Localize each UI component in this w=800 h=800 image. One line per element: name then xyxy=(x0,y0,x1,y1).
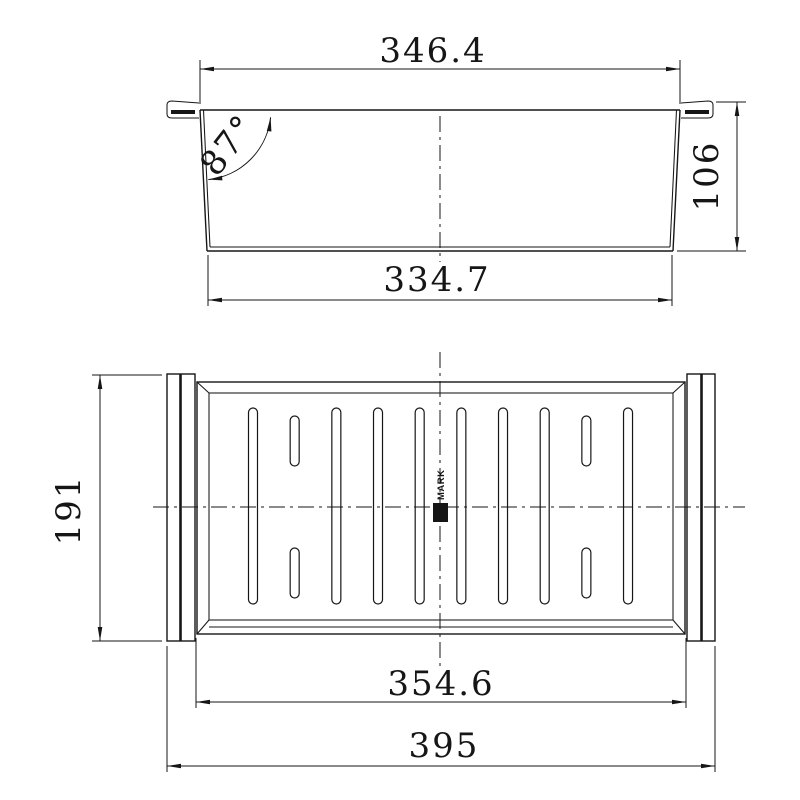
left-rim-hook xyxy=(167,101,199,118)
drain-slot-long xyxy=(624,408,633,604)
front-view: 346.4 334.7 106 87° xyxy=(167,31,746,306)
left-hook-outline xyxy=(167,101,199,118)
drain-slot-short-bottom xyxy=(290,548,299,598)
drain-slot-short-top xyxy=(582,416,591,466)
brand-mark-label: MARK xyxy=(436,470,447,501)
sink-colander-drawing: 346.4 334.7 106 87° xyxy=(0,0,800,800)
drain-slot-long xyxy=(499,408,508,604)
drain-slot-long xyxy=(249,408,258,604)
dim-depth-label: 191 xyxy=(49,475,89,546)
angle-arrow-top xyxy=(267,117,272,131)
drawing-canvas: 346.4 334.7 106 87° xyxy=(0,0,800,800)
dim-overall-width-label: 395 xyxy=(409,726,480,766)
brand-logo-square xyxy=(433,503,448,522)
dim-arrow-left xyxy=(196,700,210,705)
dim-arrow-right xyxy=(701,764,715,769)
dim-arrow-top xyxy=(735,102,740,116)
front-left-wall-outer xyxy=(200,110,207,251)
dim-height: 106 xyxy=(677,102,746,251)
dim-inner-width: 354.6 xyxy=(196,638,686,708)
drain-slot-short-bottom xyxy=(582,548,591,598)
dim-arrow-left xyxy=(167,764,181,769)
dim-arrow-top xyxy=(98,375,103,389)
dim-top-width: 346.4 xyxy=(200,31,680,104)
right-rim-hook xyxy=(681,101,713,118)
tray-chamfer-br xyxy=(673,620,685,634)
dim-depth: 191 xyxy=(49,375,162,641)
dim-arrow-right xyxy=(658,298,672,303)
brand-mark: MARK xyxy=(433,470,448,523)
front-left-wall-inner xyxy=(204,110,211,247)
drain-slot-short-top xyxy=(290,416,299,466)
front-right-wall-outer xyxy=(673,110,680,251)
dim-bottom-width: 334.7 xyxy=(208,255,672,306)
drain-slot-long xyxy=(540,408,549,604)
drain-slot-long xyxy=(457,408,466,604)
tray-chamfer-tr xyxy=(673,382,685,393)
dim-arrow-left xyxy=(200,67,214,72)
dim-arrow-left xyxy=(208,298,222,303)
drain-slot-long xyxy=(374,408,383,604)
drain-slot-long xyxy=(332,408,341,604)
drain-slot-long xyxy=(415,408,424,604)
tray-chamfer-bl xyxy=(197,620,209,634)
dim-inner-width-label: 354.6 xyxy=(387,664,494,704)
dim-bottom-width-label: 334.7 xyxy=(383,260,490,300)
tray-chamfer-tl xyxy=(197,382,209,393)
dim-arrow-bottom xyxy=(735,237,740,251)
dim-height-label: 106 xyxy=(687,141,727,212)
dim-arrow-right xyxy=(666,67,680,72)
front-right-wall-inner xyxy=(670,110,677,247)
left-hook-bar xyxy=(171,110,195,114)
right-hook-outline xyxy=(681,101,713,118)
right-hook-bar xyxy=(685,110,709,114)
plan-view: MARK 191 354.6 395 xyxy=(49,352,745,772)
dim-arrow-bottom xyxy=(98,627,103,641)
dim-top-width-label: 346.4 xyxy=(379,31,486,71)
dim-arrow-right xyxy=(672,700,686,705)
